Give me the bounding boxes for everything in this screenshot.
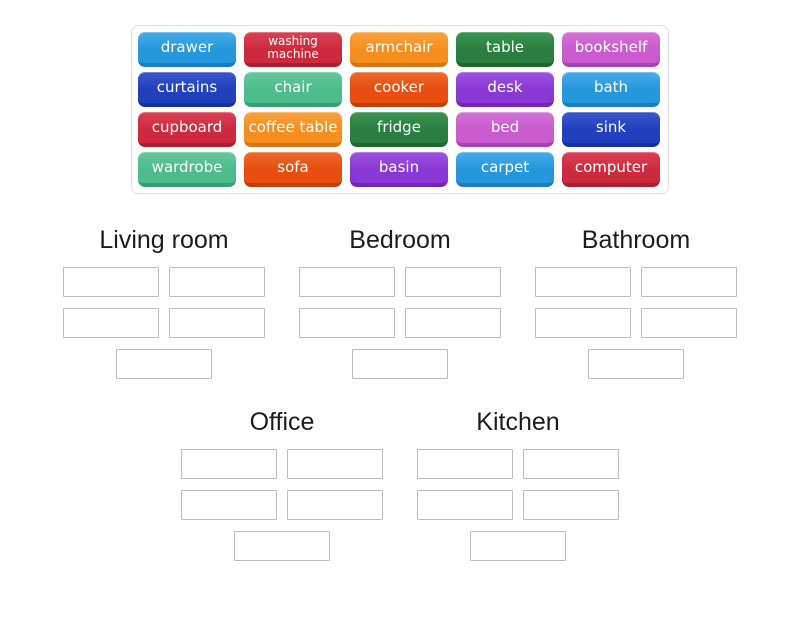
slot-row: [535, 267, 737, 297]
word-tile-label: armchair: [366, 40, 433, 56]
drop-slot[interactable]: [523, 449, 619, 479]
word-tile[interactable]: carpet: [456, 152, 554, 187]
drop-slot[interactable]: [63, 308, 159, 338]
word-bank: drawer washing machine armchair table bo…: [131, 25, 669, 194]
word-tile-label: cooker: [374, 80, 424, 96]
word-tile[interactable]: cupboard: [138, 112, 236, 147]
slot-row: [234, 531, 330, 561]
drop-slot[interactable]: [535, 267, 631, 297]
word-tile-label: sofa: [277, 160, 308, 176]
slot-row: [417, 490, 619, 520]
drop-slot[interactable]: [352, 349, 448, 379]
category-group-bathroom: Bathroom: [518, 226, 754, 379]
slot-row: [63, 267, 265, 297]
category-group-living-room: Living room: [46, 226, 282, 379]
drop-slot[interactable]: [299, 308, 395, 338]
word-tile-label: carpet: [481, 160, 529, 176]
word-tile-label: bookshelf: [575, 40, 648, 56]
word-tile[interactable]: bookshelf: [562, 32, 660, 67]
drop-slot[interactable]: [116, 349, 212, 379]
word-tile[interactable]: drawer: [138, 32, 236, 67]
groups-row-top: Living room Bedroom Bathroom: [0, 226, 800, 379]
drop-slot[interactable]: [181, 490, 277, 520]
word-tile[interactable]: desk: [456, 72, 554, 107]
category-group-kitchen: Kitchen: [400, 408, 636, 561]
slot-row: [181, 449, 383, 479]
word-tile[interactable]: cooker: [350, 72, 448, 107]
slot-row: [588, 349, 684, 379]
word-tile[interactable]: sink: [562, 112, 660, 147]
slot-row: [417, 449, 619, 479]
slot-row: [299, 308, 501, 338]
word-tile[interactable]: basin: [350, 152, 448, 187]
drop-slot[interactable]: [63, 267, 159, 297]
drop-slot[interactable]: [417, 490, 513, 520]
word-tile-label: basin: [379, 160, 419, 176]
drop-slot[interactable]: [287, 449, 383, 479]
drop-slot[interactable]: [641, 267, 737, 297]
category-title: Kitchen: [476, 408, 559, 436]
groups-row-bottom: Office Kitchen: [0, 408, 800, 561]
slot-row: [352, 349, 448, 379]
word-tile-label: bath: [594, 80, 628, 96]
category-title: Bathroom: [582, 226, 690, 254]
word-tile[interactable]: washing machine: [244, 32, 342, 67]
word-tile[interactable]: wardrobe: [138, 152, 236, 187]
category-group-office: Office: [164, 408, 400, 561]
word-tile-label: sink: [596, 120, 626, 136]
drop-slot[interactable]: [588, 349, 684, 379]
word-tile[interactable]: curtains: [138, 72, 236, 107]
drop-slot[interactable]: [405, 308, 501, 338]
word-tile-label: curtains: [157, 80, 217, 96]
slot-row: [181, 490, 383, 520]
drop-slot[interactable]: [641, 308, 737, 338]
drop-slot[interactable]: [417, 449, 513, 479]
slot-row: [63, 308, 265, 338]
drop-slot[interactable]: [299, 267, 395, 297]
slot-row: [116, 349, 212, 379]
drop-slot[interactable]: [535, 308, 631, 338]
word-tile[interactable]: chair: [244, 72, 342, 107]
word-tile[interactable]: bed: [456, 112, 554, 147]
word-tile-label: table: [486, 40, 524, 56]
slot-row: [535, 308, 737, 338]
word-tile-label: computer: [575, 160, 647, 176]
word-tile[interactable]: armchair: [350, 32, 448, 67]
word-tile-label: desk: [487, 80, 522, 96]
category-title: Bedroom: [349, 226, 450, 254]
drop-slot[interactable]: [287, 490, 383, 520]
drop-slot[interactable]: [181, 449, 277, 479]
word-tile[interactable]: bath: [562, 72, 660, 107]
word-tile[interactable]: sofa: [244, 152, 342, 187]
drop-slot[interactable]: [234, 531, 330, 561]
category-title: Office: [250, 408, 315, 436]
word-tile[interactable]: fridge: [350, 112, 448, 147]
word-tile-label: chair: [274, 80, 311, 96]
word-tile-label: washing machine: [244, 35, 342, 60]
category-group-bedroom: Bedroom: [282, 226, 518, 379]
slot-row: [299, 267, 501, 297]
word-tile-label: drawer: [161, 40, 214, 56]
drop-slot[interactable]: [405, 267, 501, 297]
category-title: Living room: [99, 226, 228, 254]
word-tile[interactable]: computer: [562, 152, 660, 187]
drop-slot[interactable]: [169, 267, 265, 297]
drop-slot[interactable]: [169, 308, 265, 338]
slot-row: [470, 531, 566, 561]
word-tile-label: fridge: [377, 120, 421, 136]
word-tile-label: bed: [491, 120, 519, 136]
word-tile[interactable]: table: [456, 32, 554, 67]
word-tile-label: wardrobe: [152, 160, 223, 176]
word-tile[interactable]: coffee table: [244, 112, 342, 147]
word-tile-label: cupboard: [152, 120, 223, 136]
drop-slot[interactable]: [523, 490, 619, 520]
word-tile-label: coffee table: [249, 120, 338, 136]
drop-slot[interactable]: [470, 531, 566, 561]
